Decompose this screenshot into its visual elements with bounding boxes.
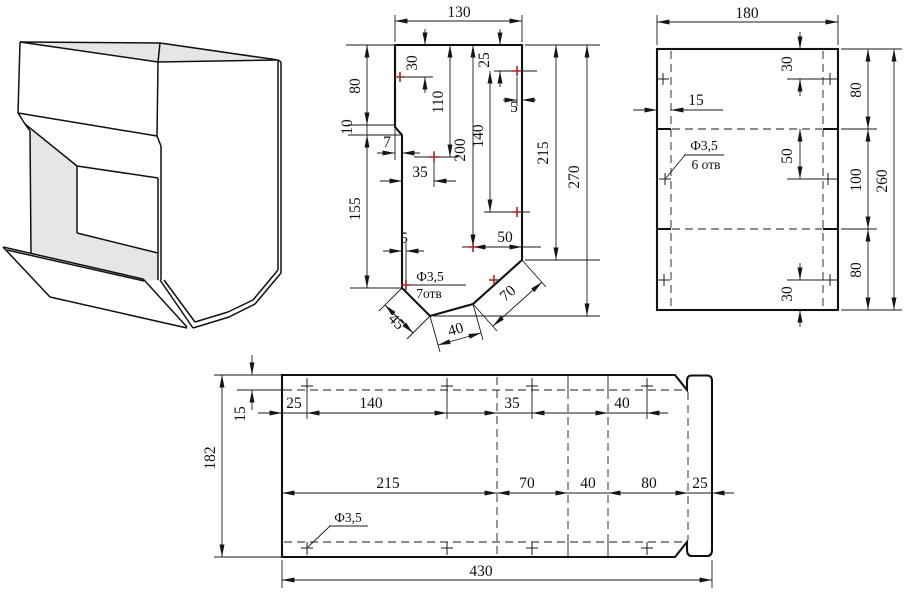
dim-side-holes-bottom: 30 xyxy=(779,286,796,302)
dim-side-width: 180 xyxy=(735,5,759,22)
technical-drawing-sheet: 130 80 10 155 7 30 110 200 140 25 5 35 5… xyxy=(0,0,906,596)
dim-step-depth: 7 xyxy=(383,134,391,151)
flat-view-bottom: 25 140 35 40 215 70 40 80 25 430 182 15 … xyxy=(202,355,734,588)
dim-edge-top: 80 xyxy=(347,78,364,94)
dim-edge-off-bottom: 5 xyxy=(400,230,408,247)
dim-bottom-width: 430 xyxy=(469,563,493,580)
dim-hole-bottom: 50 xyxy=(497,229,513,246)
dim-bottom-flap: 15 xyxy=(232,406,249,422)
dim-side-holes-mid: 50 xyxy=(779,148,796,164)
dim-bottom-row1: 215 xyxy=(376,475,400,492)
bottom-holes-dia-label: Ф3,5 xyxy=(334,510,362,525)
bottom-dimension-lines xyxy=(222,355,734,580)
dim-bottom-row2: 70 xyxy=(519,475,535,492)
dim-bottom-height: 182 xyxy=(202,446,219,469)
dim-chamfer-left: 45 xyxy=(385,310,408,333)
dim-height-overall: 270 xyxy=(566,165,583,189)
bottom-slit-stubs xyxy=(568,375,608,557)
side-hole-marks xyxy=(657,73,836,286)
iso-top-face xyxy=(20,42,278,62)
dim-bottom-col2: 140 xyxy=(359,395,383,412)
dim-side-holes-top: 30 xyxy=(779,56,796,72)
dim-bottom-row4: 80 xyxy=(641,475,657,492)
bottom-dimension-labels: 25 140 35 40 215 70 40 80 25 430 182 15 … xyxy=(202,395,708,580)
dim-bottom-col3: 35 xyxy=(504,395,520,412)
iso-view xyxy=(3,42,281,328)
dim-bottom-row5: 25 xyxy=(692,475,708,492)
dim-bottom-row3: 40 xyxy=(580,475,596,492)
side-holes-dia-label: Ф3,5 xyxy=(690,138,718,153)
dim-chamfer-right: 70 xyxy=(497,282,520,305)
dim-side-band-top: 80 xyxy=(848,82,865,98)
flat-view-side: 180 15 30 50 30 80 100 80 260 Ф3,5 6 отв xyxy=(633,5,902,327)
dim-edge-off-right: 5 xyxy=(510,99,518,116)
dim-side-offset: 15 xyxy=(688,92,704,109)
main-dimension-lines xyxy=(367,21,587,345)
side-holes-count-label: 6 отв xyxy=(692,157,721,172)
flat-view-main: 130 80 10 155 7 30 110 200 140 25 5 35 5… xyxy=(339,4,600,352)
dim-hole-row1: 30 xyxy=(404,55,421,71)
iso-slope-face xyxy=(25,124,158,281)
bottom-hole-marks xyxy=(301,380,653,555)
side-outline xyxy=(657,49,838,310)
dim-hole-span: 140 xyxy=(470,124,487,148)
dim-chamfer-mid: 40 xyxy=(446,319,466,340)
dim-edge-lower: 155 xyxy=(347,197,364,221)
drawing-canvas: 130 80 10 155 7 30 110 200 140 25 5 35 5… xyxy=(0,0,906,596)
dim-edge-step: 10 xyxy=(339,119,356,135)
dim-bottom-col4: 40 xyxy=(614,395,630,412)
dim-hole-left: 35 xyxy=(412,164,428,181)
bottom-outline xyxy=(282,375,712,557)
main-holes-dia-label: Ф3,5 xyxy=(416,269,444,284)
dim-hole-col: 110 xyxy=(430,90,447,113)
dim-side-height: 260 xyxy=(874,169,891,193)
main-dimension-labels: 130 80 10 155 7 30 110 200 140 25 5 35 5… xyxy=(339,4,583,340)
dim-side-band-bottom: 80 xyxy=(848,262,865,278)
dim-bottom-col1: 25 xyxy=(286,395,302,412)
main-holes-count-label: 7отв xyxy=(416,286,442,301)
dim-height-right: 215 xyxy=(535,141,552,165)
dim-side-band-mid: 100 xyxy=(848,168,865,192)
dim-overall-width: 130 xyxy=(447,4,471,21)
dim-hole-deep: 200 xyxy=(452,138,469,162)
dim-hole-row2: 25 xyxy=(476,52,493,68)
